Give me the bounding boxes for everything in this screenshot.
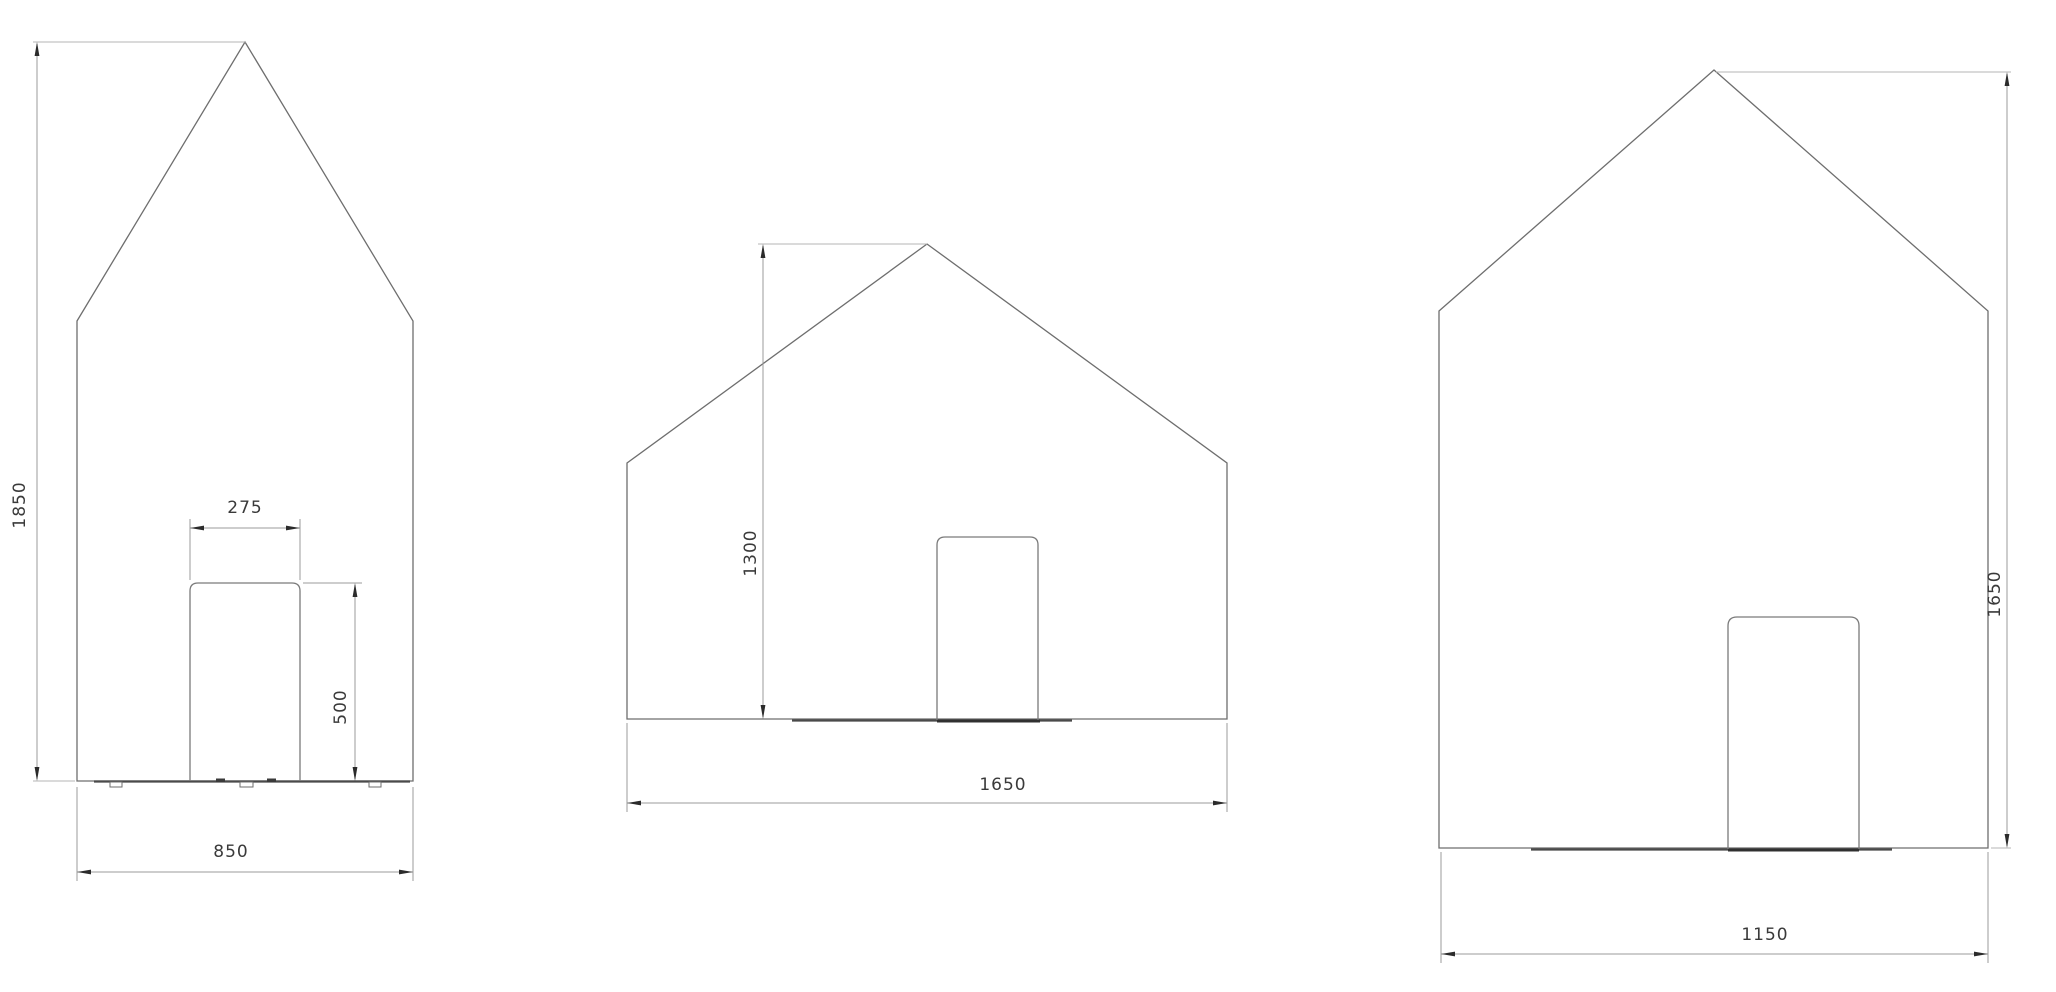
large-house-height-arrow-down xyxy=(2005,834,2010,848)
medium-house-height-arrow-up xyxy=(761,244,766,258)
small-house-width-label: 850 xyxy=(213,842,248,862)
medium-house-width-label: 1650 xyxy=(979,775,1026,795)
small-house-height-arrow-up xyxy=(35,42,40,56)
small-house-foot-left xyxy=(110,782,122,787)
elevation-small-house: 1850 275 500 850 xyxy=(10,42,413,881)
large-house-width-arrow-left xyxy=(1441,952,1455,957)
small-house-height-label: 1850 xyxy=(10,481,30,528)
small-house-door-width-arrow-right xyxy=(286,526,300,531)
small-house-door-height-label: 500 xyxy=(331,689,351,724)
small-house-height-arrow-down xyxy=(35,767,40,781)
technical-drawing-canvas: 1850 275 500 850 1300 xyxy=(0,0,2056,992)
small-house-foot-center xyxy=(240,782,253,787)
small-house-door-height-arrow-up xyxy=(353,583,358,597)
small-house-foot-right xyxy=(369,782,381,787)
large-house-door xyxy=(1728,617,1859,849)
small-house-door-width-arrow-left xyxy=(190,526,204,531)
small-house-outline xyxy=(77,42,413,781)
large-house-width-label: 1150 xyxy=(1741,925,1788,945)
medium-house-outline xyxy=(627,244,1227,719)
medium-house-height-arrow-down xyxy=(761,705,766,719)
large-house-height-label: 1650 xyxy=(1985,570,2005,617)
large-house-width-arrow-right xyxy=(1974,952,1988,957)
large-house-outline xyxy=(1439,70,1988,848)
elevation-large-house: 1650 1150 xyxy=(1439,70,2011,963)
small-house-sill-mark-right xyxy=(267,779,276,783)
small-house-door-width-label: 275 xyxy=(227,498,262,518)
large-house-height-arrow-up xyxy=(2005,72,2010,86)
small-house-width-arrow-right xyxy=(399,870,413,875)
medium-house-door xyxy=(937,537,1038,720)
medium-house-width-arrow-left xyxy=(627,801,641,806)
small-house-width-arrow-left xyxy=(77,870,91,875)
medium-house-width-arrow-right xyxy=(1213,801,1227,806)
small-house-sill-mark-left xyxy=(216,779,225,783)
elevation-drawings-svg: 1850 275 500 850 1300 xyxy=(0,0,2056,992)
small-house-door xyxy=(190,583,300,781)
small-house-door-height-arrow-down xyxy=(353,767,358,781)
medium-house-height-label: 1300 xyxy=(741,529,761,576)
elevation-medium-house: 1300 1650 xyxy=(627,244,1227,812)
